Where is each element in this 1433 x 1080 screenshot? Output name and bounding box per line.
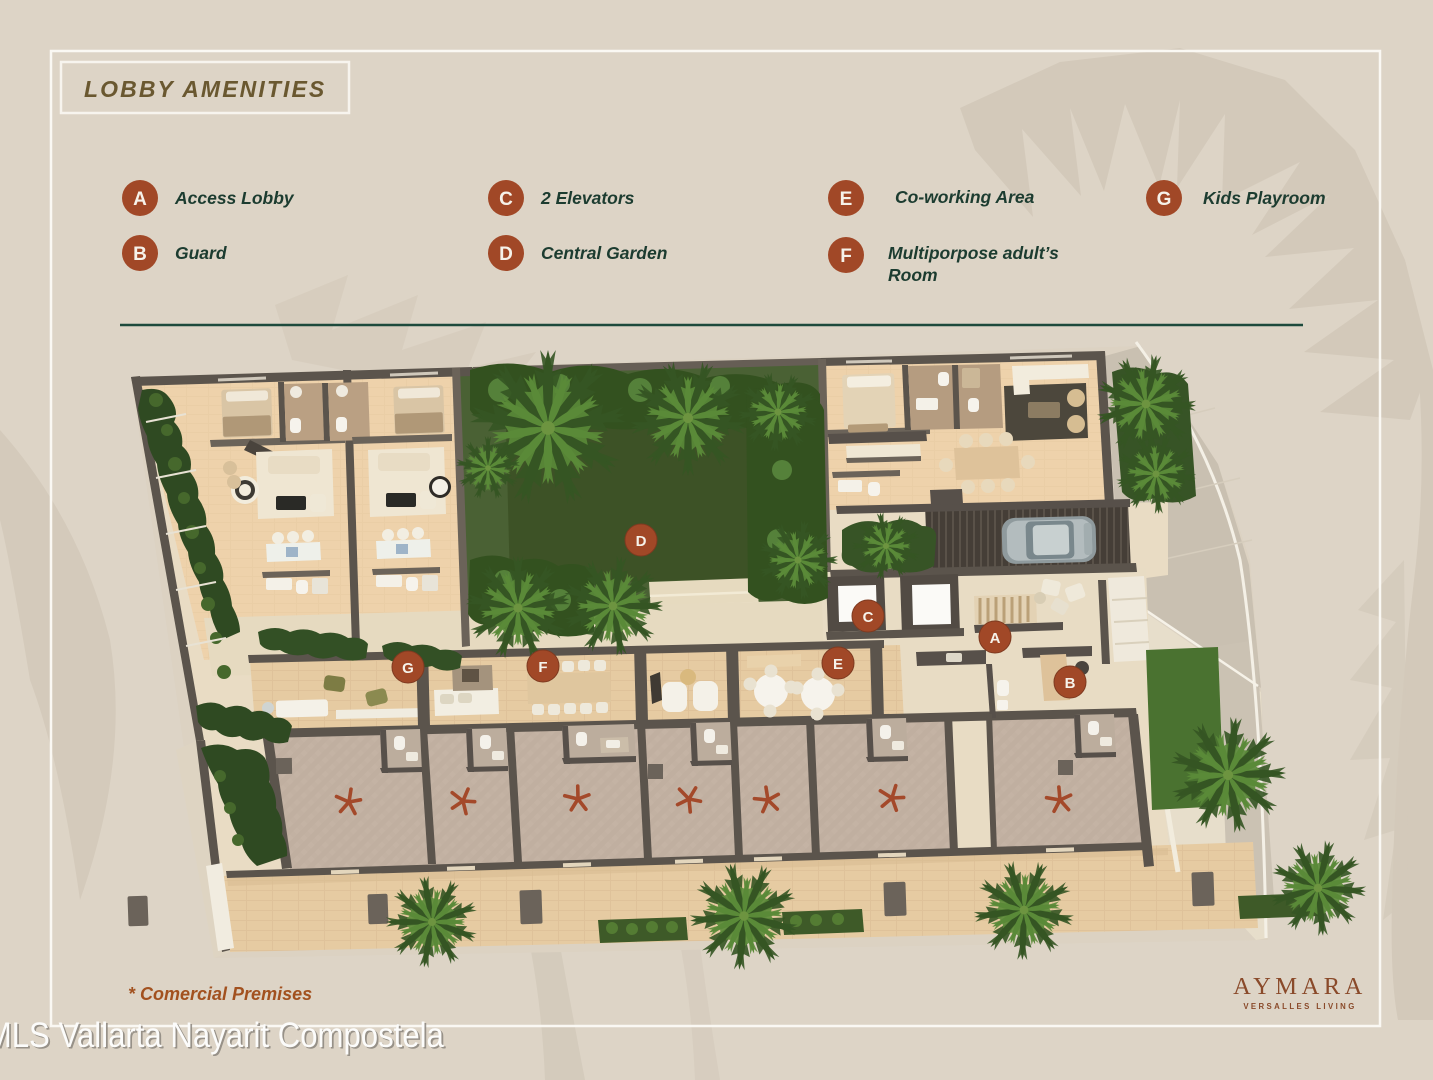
svg-text:B: B <box>133 244 147 265</box>
svg-text:Central Garden: Central Garden <box>541 243 667 263</box>
svg-text:AYMARA: AYMARA <box>1233 973 1367 1000</box>
svg-text:Kids Playroom: Kids Playroom <box>1203 188 1326 208</box>
svg-text:E: E <box>833 656 843 673</box>
svg-text:C: C <box>499 189 513 210</box>
svg-text:A: A <box>133 189 147 210</box>
svg-text:MLS Vallarta Nayarit Compostel: MLS Vallarta Nayarit Compostela <box>0 1016 444 1055</box>
svg-text:E: E <box>840 189 853 210</box>
svg-text:Room: Room <box>888 265 938 285</box>
svg-text:G: G <box>402 660 414 677</box>
svg-text:LOBBY AMENITIES: LOBBY AMENITIES <box>84 76 326 102</box>
svg-text:2 Elevators: 2 Elevators <box>540 188 635 208</box>
svg-text:Co-working Area: Co-working Area <box>895 187 1035 207</box>
svg-text:C: C <box>863 609 874 626</box>
svg-text:G: G <box>1157 189 1172 210</box>
svg-text:VERSALLES LIVING: VERSALLES LIVING <box>1243 1002 1356 1011</box>
svg-text:F: F <box>538 659 547 676</box>
svg-text:B: B <box>1065 675 1076 692</box>
svg-text:Guard: Guard <box>175 243 227 263</box>
svg-text:Multiporpose adult’s: Multiporpose adult’s <box>888 243 1059 263</box>
svg-text:* Comercial Premises: * Comercial Premises <box>128 984 312 1004</box>
svg-text:F: F <box>840 246 852 267</box>
svg-text:D: D <box>499 244 513 265</box>
svg-text:D: D <box>636 533 647 550</box>
svg-text:A: A <box>990 630 1001 647</box>
svg-text:Access Lobby: Access Lobby <box>174 188 295 208</box>
